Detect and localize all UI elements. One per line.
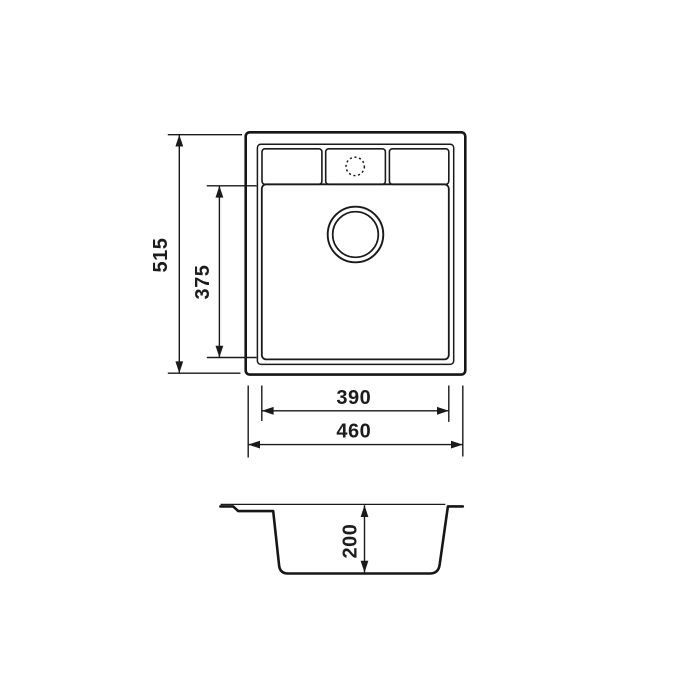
svg-text:460: 460 (336, 420, 371, 442)
svg-text:390: 390 (336, 387, 371, 409)
svg-text:515: 515 (150, 238, 172, 273)
svg-text:375: 375 (192, 265, 214, 300)
svg-text:200: 200 (340, 524, 362, 559)
